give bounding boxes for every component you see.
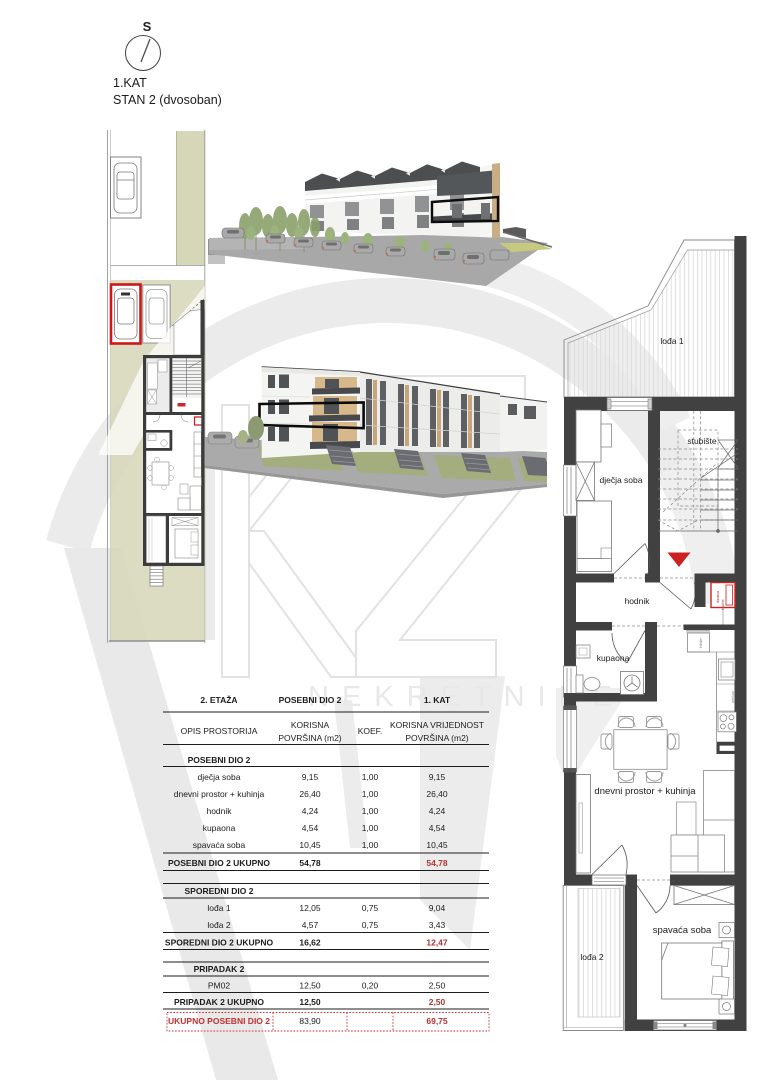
svg-text:12,47: 12,47 [426,938,448,948]
svg-text:perilica: perilica [731,691,735,702]
svg-text:KOEF.: KOEF. [358,726,383,736]
svg-text:2,50: 2,50 [429,997,446,1007]
svg-text:PRIPADAK 2 UKUPNO: PRIPADAK 2 UKUPNO [174,997,264,1007]
svg-text:KORISNA VRIJEDNOST: KORISNA VRIJEDNOST [390,720,484,730]
svg-text:dnevni prostor + kuhinja: dnevni prostor + kuhinja [594,786,696,797]
svg-text:69,75: 69,75 [426,1016,448,1026]
svg-text:26,40: 26,40 [426,789,448,799]
svg-text:spavaća soba: spavaća soba [193,840,246,850]
svg-text:12,05: 12,05 [299,903,321,913]
svg-text:83,90: 83,90 [299,1016,321,1026]
svg-text:spavaća soba: spavaća soba [653,925,712,936]
svg-text:kupaona: kupaona [597,653,630,663]
svg-text:POVRŠINA (m2): POVRŠINA (m2) [405,733,468,743]
svg-text:1,00: 1,00 [362,806,379,816]
svg-text:1,00: 1,00 [362,840,379,850]
svg-text:2,50: 2,50 [429,981,446,991]
svg-text:1. KAT: 1. KAT [424,695,451,705]
svg-text:POSEBNI DIO 2: POSEBNI DIO 2 [188,755,251,765]
svg-text:dječja soba: dječja soba [599,475,642,485]
svg-text:stubište: stubište [687,436,717,446]
svg-text:2. ETAŽA: 2. ETAŽA [200,694,237,705]
svg-text:lođa 2: lođa 2 [580,952,603,962]
svg-text:4,24: 4,24 [302,806,319,816]
svg-text:S: S [143,19,152,34]
svg-text:9,15: 9,15 [429,772,446,782]
svg-text:hodnik: hodnik [624,596,650,606]
svg-text:54,78: 54,78 [299,858,321,868]
svg-text:POSEBNI DIO 2: POSEBNI DIO 2 [279,695,342,705]
svg-text:1,00: 1,00 [362,789,379,799]
svg-text:1,00: 1,00 [362,772,379,782]
svg-text:54,78: 54,78 [426,858,448,868]
svg-text:0,75: 0,75 [362,903,379,913]
svg-text:26,40: 26,40 [299,789,321,799]
svg-text:12,50: 12,50 [299,997,321,1007]
svg-text:4,54: 4,54 [429,823,446,833]
svg-text:frižider: frižider [699,637,703,649]
svg-text:16,62: 16,62 [299,938,321,948]
svg-text:kupaona: kupaona [203,823,236,833]
svg-text:9,04: 9,04 [429,903,446,913]
svg-text:lođa 1: lođa 1 [207,903,230,913]
svg-text:SPOREDNI DIO 2 UKUPNO: SPOREDNI DIO 2 UKUPNO [165,938,274,948]
svg-text:4,57: 4,57 [302,920,319,930]
svg-text:12,50: 12,50 [299,981,321,991]
svg-text:POVRŠINA (m2): POVRŠINA (m2) [278,733,341,743]
svg-text:UKUPNO POSEBNI DIO 2: UKUPNO POSEBNI DIO 2 [168,1016,270,1026]
svg-text:STAN 2 (dvosoban): STAN 2 (dvosoban) [113,93,222,107]
svg-text:1,00: 1,00 [362,823,379,833]
svg-text:dječja soba: dječja soba [197,772,240,782]
svg-text:KORISNA: KORISNA [291,720,330,730]
svg-text:PM02: PM02 [208,981,230,991]
svg-text:dizalica: dizalica [716,591,720,603]
svg-text:10,45: 10,45 [299,840,321,850]
svg-text:SPOREDNI DIO 2: SPOREDNI DIO 2 [185,886,254,896]
svg-text:dnevni prostor + kuhinja: dnevni prostor + kuhinja [174,789,265,799]
svg-text:9,15: 9,15 [302,772,319,782]
svg-text:hodnik: hodnik [206,806,232,816]
svg-text:0,20: 0,20 [362,981,379,991]
svg-text:POSEBNI DIO 2 UKUPNO: POSEBNI DIO 2 UKUPNO [168,858,270,868]
svg-text:3,43: 3,43 [429,920,446,930]
svg-text:lođa 1: lođa 1 [660,336,683,346]
svg-text:lođa 2: lođa 2 [207,920,230,930]
svg-text:PRIPADAK 2: PRIPADAK 2 [194,964,245,974]
svg-text:4,24: 4,24 [429,806,446,816]
svg-text:OPIS PROSTORIJA: OPIS PROSTORIJA [181,726,258,736]
svg-text:0,75: 0,75 [362,920,379,930]
svg-text:4,54: 4,54 [302,823,319,833]
svg-text:1.KAT: 1.KAT [113,76,147,90]
svg-text:10,45: 10,45 [426,840,448,850]
